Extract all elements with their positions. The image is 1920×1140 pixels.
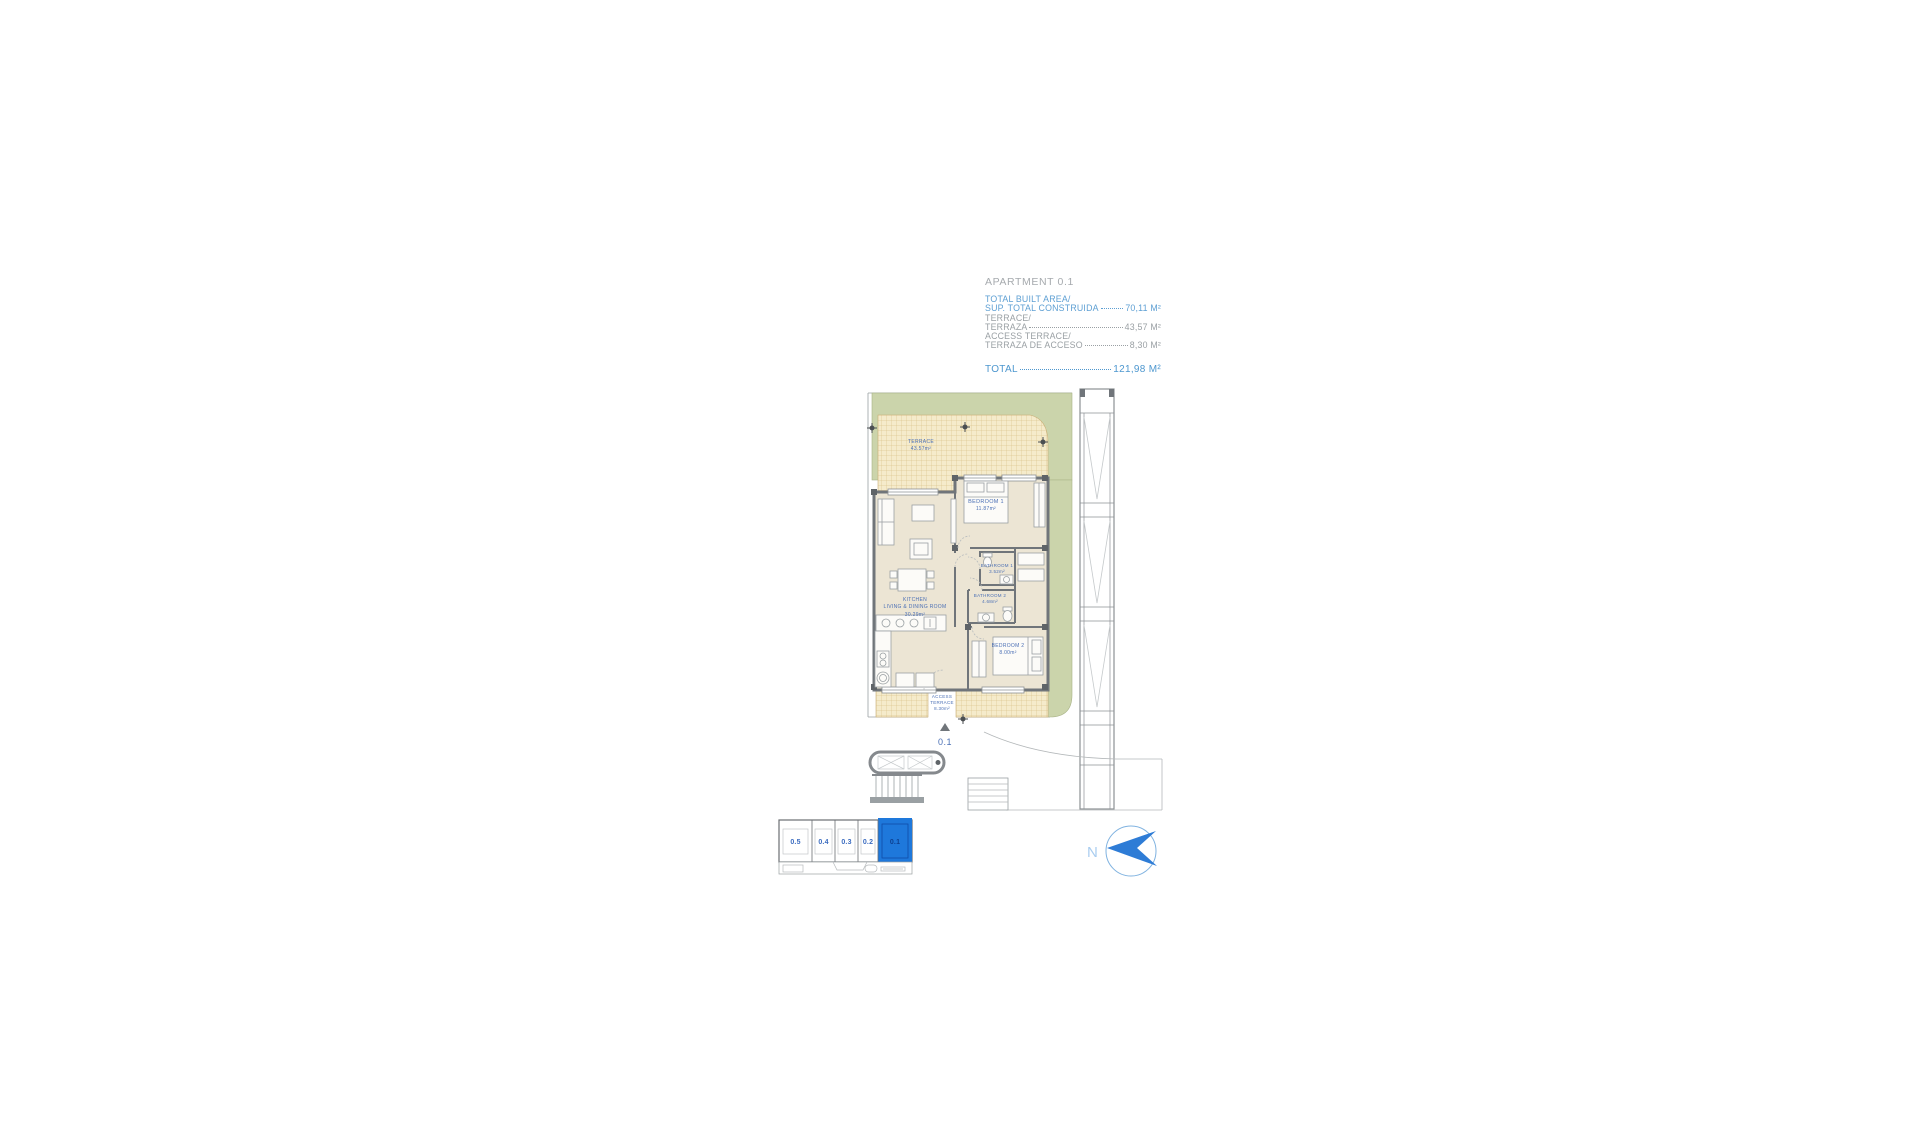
north-label: N [1087, 844, 1098, 861]
key-plan: 0.5 0.4 0.3 0.2 0.1 [775, 814, 925, 880]
floor-plan-drawing: 0.1 TERRACE 43.57m² BEDROOM 1 11.87m² [866, 385, 1166, 885]
dotted-leader [1020, 369, 1111, 370]
bedroom2-area: 8.00m² [999, 650, 1016, 656]
keyplan-unit-03[interactable]: 0.3 [841, 839, 851, 846]
area-summary: APARTMENT 0.1 TOTAL BUILT AREA/ SUP. TOT… [985, 276, 1161, 375]
access-terrace-area: 8.30m² [934, 706, 950, 711]
bedroom1-label: BEDROOM 1 [968, 499, 1004, 505]
bedroom2-label: BEDROOM 2 [992, 643, 1025, 649]
exterior-ramp [870, 752, 944, 803]
summary-entry-built-area: TOTAL BUILT AREA/ SUP. TOTAL CONSTRUIDA … [985, 295, 1161, 314]
entrance-label: 0.1 [938, 737, 952, 747]
summary-value: 8,30 M² [1130, 341, 1161, 350]
summary-entry-terrace: TERRACE/ TERRAZA 43,57 M² [985, 314, 1161, 333]
summary-label-es: TERRAZA DE ACCESO [985, 341, 1083, 350]
summary-value: 43,57 M² [1125, 323, 1161, 332]
bathroom1-label: BATHROOM 1 [981, 563, 1014, 568]
keyplan-unit-02[interactable]: 0.2 [863, 839, 873, 846]
total-label: TOTAL [985, 364, 1018, 375]
summary-entry-access-terrace: ACCESS TERRACE/ TERRAZA DE ACCESO 8,30 M… [985, 332, 1161, 351]
stairwell-strip [1080, 389, 1114, 809]
apartment-title: APARTMENT 0.1 [985, 276, 1161, 288]
exterior-paths [968, 732, 1162, 810]
summary-total: TOTAL 121,98 M² [985, 364, 1161, 375]
north-arrow-icon [1107, 831, 1157, 866]
bathroom2-area: 4.68m² [982, 599, 998, 604]
access-terrace-tiles [876, 690, 1048, 717]
kitchen-label: KITCHEN [903, 597, 927, 603]
terrace-label: TERRACE [908, 439, 934, 445]
floor-plan: 0.1 TERRACE 43.57m² BEDROOM 1 11.87m² [866, 385, 1166, 885]
dotted-leader [1085, 345, 1128, 346]
access-terrace-label: ACCESS [932, 694, 952, 699]
bathroom2-label: BATHROOM 2 [974, 593, 1007, 598]
north-compass: N [1085, 820, 1165, 882]
keyplan-unit-01[interactable]: 0.1 [890, 839, 900, 846]
key-plan-drawing: 0.5 0.4 0.3 0.2 0.1 [775, 814, 925, 880]
bathroom1-area: 3.52m² [989, 569, 1005, 574]
kitchen-label2: LIVING & DINING ROOM [884, 604, 947, 610]
bedroom1-area: 11.87m² [976, 506, 996, 512]
dotted-leader [1029, 327, 1122, 328]
north-compass-drawing: N [1085, 820, 1165, 882]
total-value: 121,98 M² [1113, 364, 1161, 375]
summary-value: 70,11 M² [1125, 304, 1161, 313]
terrace-area: 43.57m² [911, 446, 931, 452]
entrance-marker: 0.1 [938, 723, 952, 747]
kitchen-area: 30.29m² [905, 612, 925, 618]
dotted-leader [1101, 308, 1124, 309]
keyplan-bottom-band [779, 862, 912, 874]
access-terrace-label2: TERRACE [930, 700, 954, 705]
keyplan-unit-04[interactable]: 0.4 [818, 839, 828, 846]
keyplan-unit-05[interactable]: 0.5 [790, 839, 800, 846]
